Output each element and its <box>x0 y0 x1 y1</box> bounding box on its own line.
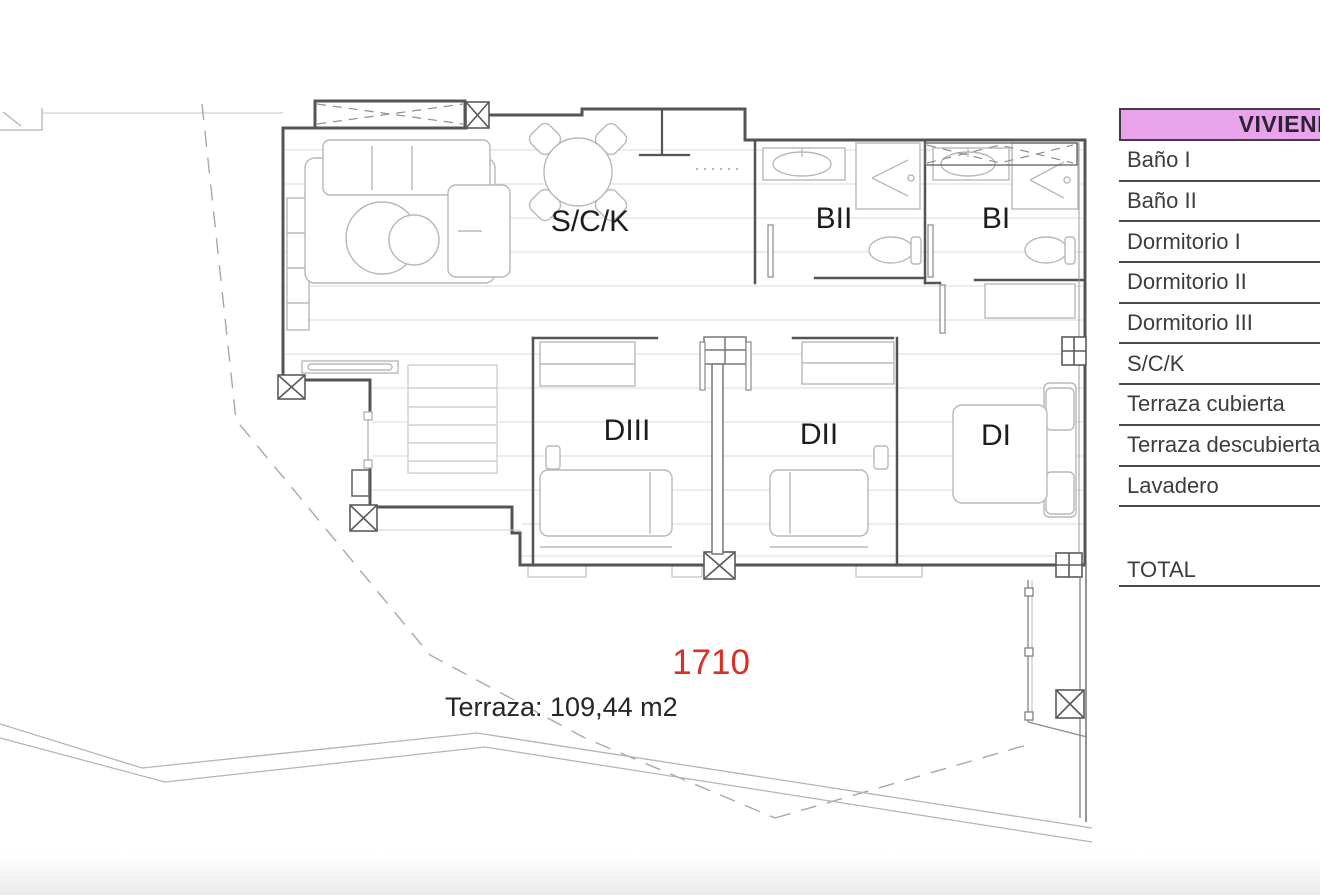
legend-total: TOTAL <box>1119 554 1320 587</box>
legend-row-bano1: Baño I <box>1119 141 1320 182</box>
terrace-area-label: Terraza: 109,44 m2 <box>445 692 678 722</box>
room-label-bed1: DI <box>981 419 1011 452</box>
legend-row-bano2: Baño II <box>1119 182 1320 223</box>
toilet <box>1025 237 1067 263</box>
room-label-bed2: DII <box>800 418 838 451</box>
bottom-gradient-band <box>0 853 1320 895</box>
column-plus <box>1056 553 1082 577</box>
legend-row-terraza-descubierta: Terraza descubierta <box>1119 426 1320 467</box>
legend-row-lavadero: Lavadero <box>1119 467 1320 508</box>
terrace-edge-lines <box>0 724 1092 842</box>
legend-row-terraza-cubierta: Terraza cubierta <box>1119 385 1320 426</box>
closet-bed1 <box>985 284 1075 318</box>
coffee-table-small <box>389 215 439 265</box>
door-bed1 <box>940 285 945 333</box>
column-x <box>350 505 377 531</box>
shaft <box>704 337 746 554</box>
door-bed2 <box>746 342 751 390</box>
column-x <box>466 102 489 128</box>
door-bed3 <box>700 342 705 390</box>
toilet <box>869 237 913 263</box>
terrace-steps <box>408 365 497 473</box>
door-bath1 <box>928 225 933 277</box>
unit-number: 1710 <box>672 643 750 682</box>
door-bath2 <box>768 225 773 277</box>
legend-row-dormitorio3: Dormitorio III <box>1119 304 1320 345</box>
column-x <box>278 375 305 399</box>
room-label-bath2: BII <box>816 202 853 235</box>
column-x <box>1056 690 1084 718</box>
sliding-door <box>352 412 372 496</box>
column-plus <box>1062 337 1086 365</box>
legend-row-dormitorio1: Dormitorio I <box>1119 222 1320 263</box>
legend-row-dormitorio2: Dormitorio II <box>1119 263 1320 304</box>
room-label-bed3: DIII <box>604 414 651 447</box>
floor-plan-sheet: S/C/K BII BI DIII DII DI 1710 Terraza: 1… <box>0 0 1320 895</box>
bed3 <box>540 446 672 547</box>
site-wall-fragment <box>0 108 283 130</box>
column-x <box>704 552 735 579</box>
legend-table: VIVIENDA Baño I Baño II Dormitorio I Dor… <box>1119 108 1320 587</box>
laundry-area <box>1025 565 1087 822</box>
legend-row-sck: S/C/K <box>1119 344 1320 385</box>
legend-header: VIVIENDA <box>1119 108 1320 141</box>
shower-tray <box>1012 143 1078 209</box>
furniture <box>287 121 1078 547</box>
room-label-living: S/C/K <box>551 205 629 238</box>
bed2 <box>770 446 888 547</box>
bed1 <box>953 383 1076 517</box>
room-label-bath1: BI <box>982 202 1010 235</box>
